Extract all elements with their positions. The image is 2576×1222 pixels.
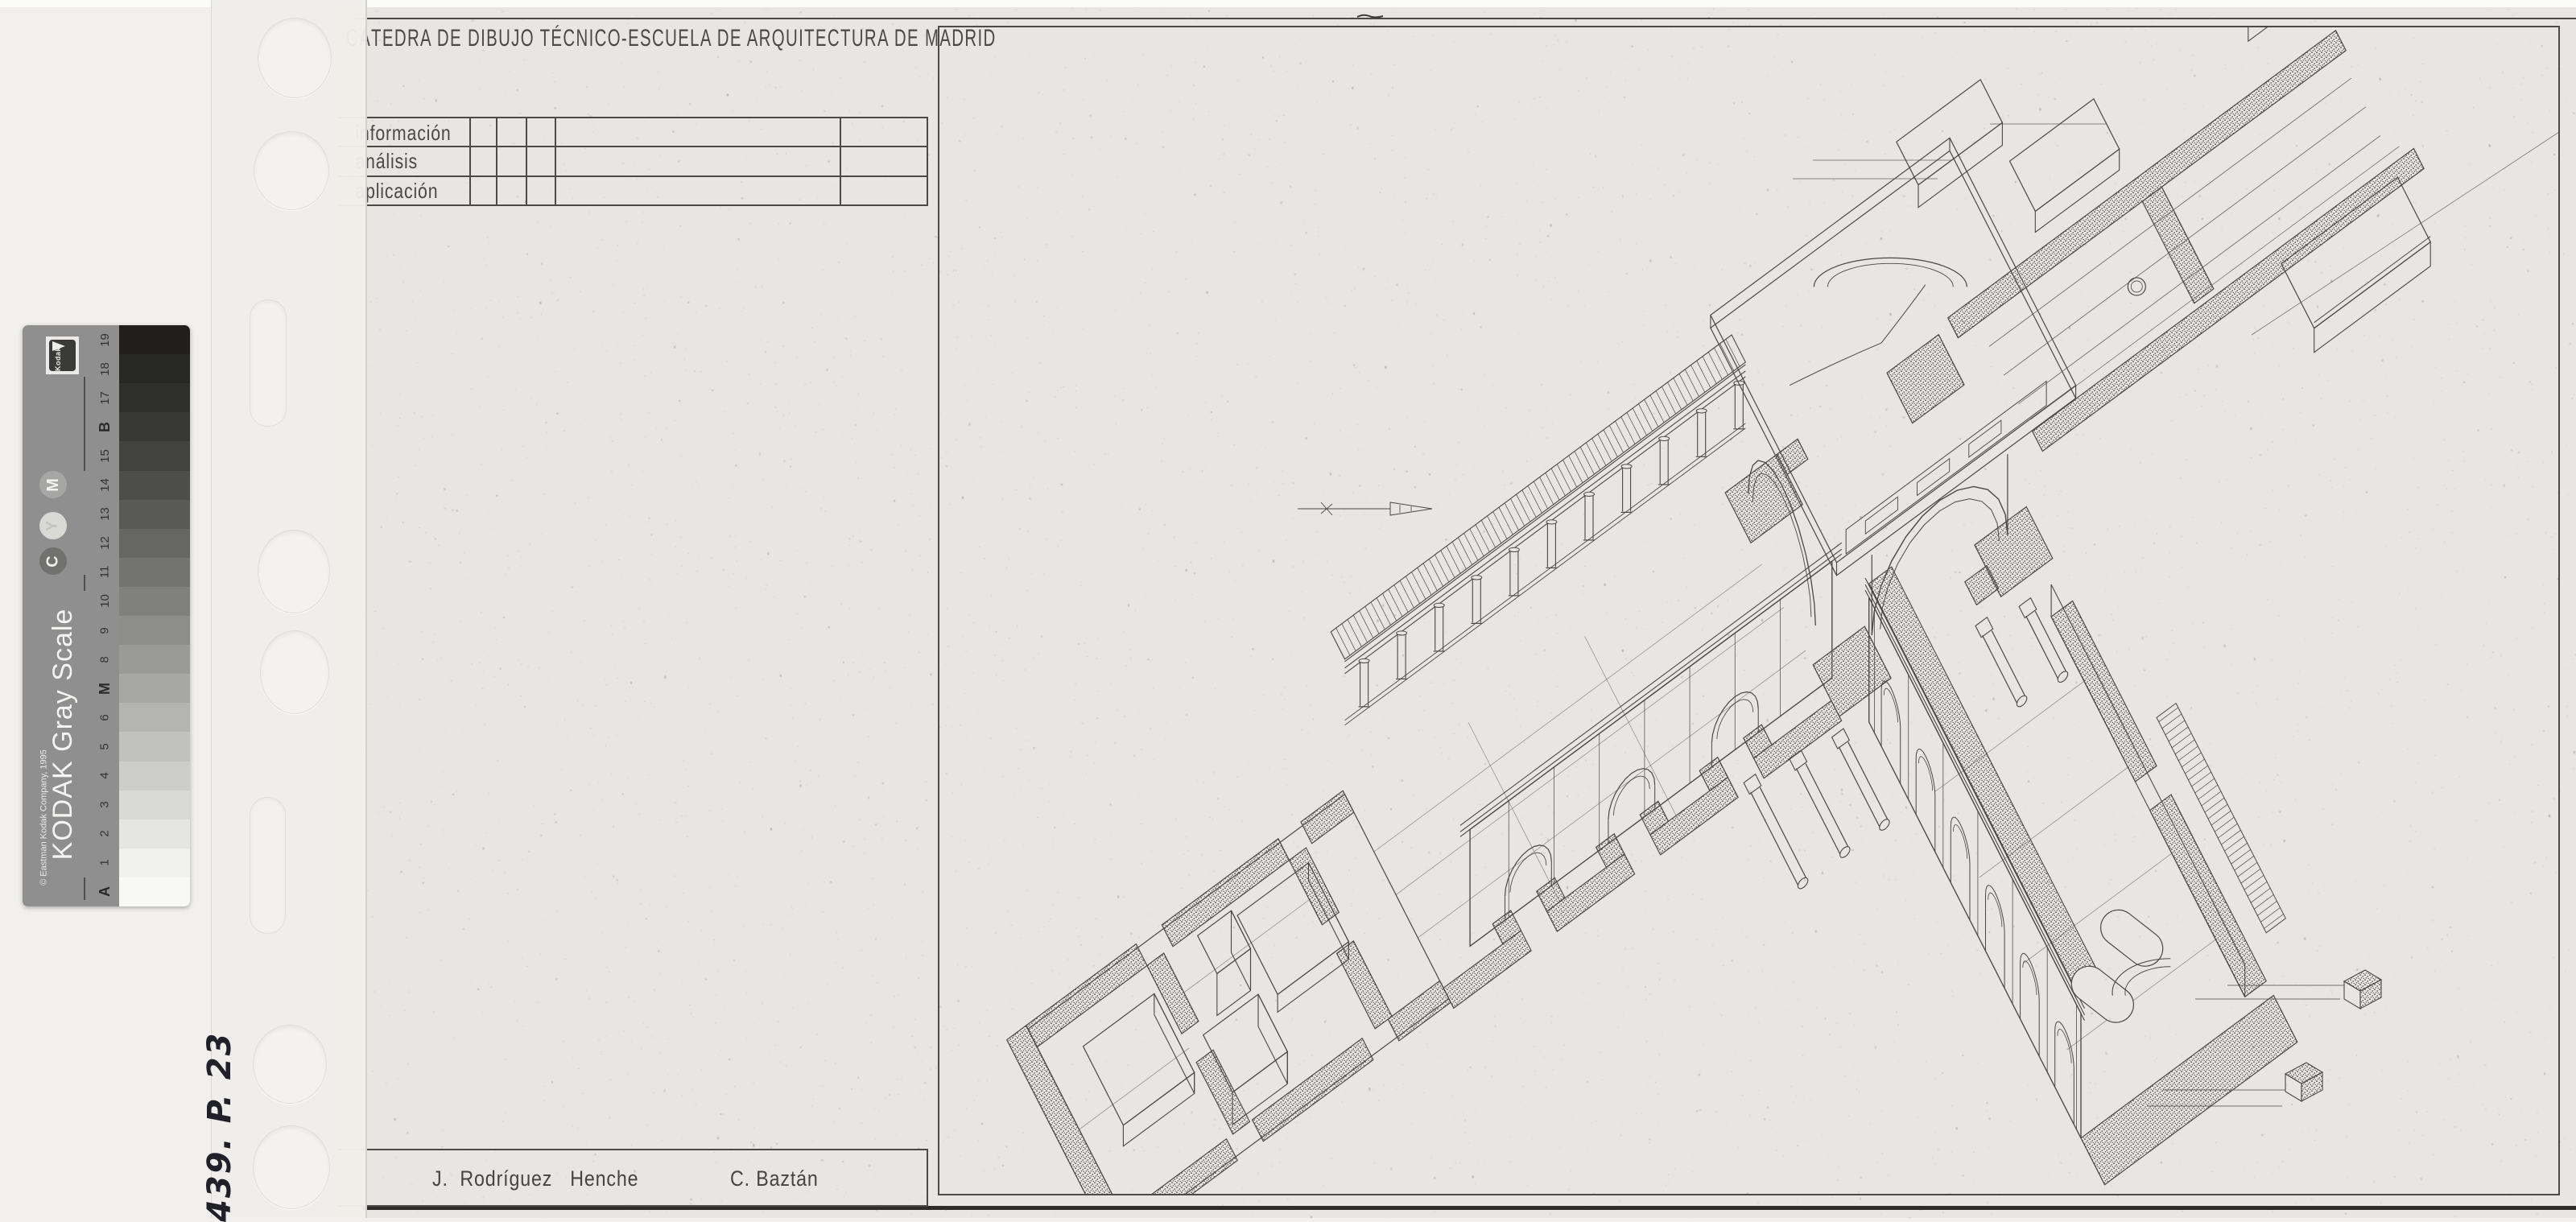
table-row: aplicación	[338, 176, 927, 205]
gray-patch-label: 11	[90, 558, 119, 587]
gray-patch-label: B	[90, 412, 119, 441]
kodak-logo-text: Kodak	[54, 338, 64, 380]
gray-patch	[119, 877, 190, 906]
drawing-frame	[938, 26, 2560, 1195]
scanned-drawing-photograph: CÁTEDRA DE DIBUJO TÉCNICO-ESCUELA DE ARQ…	[0, 0, 2576, 1218]
authors-box: J. Rodríguez Henche C. Baztán	[338, 1149, 928, 1207]
handwritten-tick	[1356, 9, 1384, 15]
gray-patch-label: 1	[90, 848, 119, 877]
gray-patch	[119, 558, 190, 588]
gray-patch	[119, 471, 190, 501]
gray-patch	[119, 703, 190, 733]
strip-rule	[84, 377, 85, 471]
gray-patch-label: 9	[90, 616, 119, 645]
gray-patch	[119, 412, 190, 442]
kodak-copyright: © Eastman Kodak Company, 1995	[39, 741, 52, 894]
gray-patch	[119, 587, 190, 617]
sleeve-tab	[250, 299, 287, 427]
yellow-patch-circle: Y	[39, 512, 67, 539]
scan-top-edge	[0, 0, 2576, 7]
gray-patch-label: 10	[90, 587, 119, 616]
gray-patch	[119, 500, 190, 530]
gray-patch	[119, 529, 190, 559]
gray-patch	[119, 791, 190, 820]
sleeve-tab	[250, 797, 286, 934]
gray-patch-label: M	[90, 674, 119, 703]
table-row: información	[338, 118, 927, 147]
gray-patch-label: 14	[90, 471, 119, 500]
gray-patch	[119, 616, 190, 646]
gray-patch-label: 13	[90, 500, 119, 529]
gray-patch-label: 19	[90, 325, 119, 354]
punch-hole	[258, 530, 330, 613]
gray-patch-label: 6	[90, 703, 119, 732]
strip-rule	[84, 877, 85, 900]
kodak-gray-scale-strip: 191817B15141312111098M654321A KODAK Gray…	[23, 325, 190, 906]
gray-patch	[119, 441, 190, 471]
gray-scale-patches	[119, 325, 190, 906]
author-name: C. Baztán	[730, 1166, 819, 1191]
gray-patch	[119, 674, 190, 704]
gray-patch-label: 3	[90, 791, 119, 819]
sleeve-edge	[365, 0, 367, 1218]
gray-patch-label: 17	[90, 383, 119, 412]
gray-patch-label: 15	[90, 441, 119, 470]
punch-hole	[258, 18, 332, 98]
gray-patch-label: 12	[90, 529, 119, 558]
gray-patch-label: 2	[90, 819, 119, 848]
gray-patch	[119, 645, 190, 675]
gray-patch	[119, 732, 190, 762]
punch-hole	[254, 131, 329, 210]
magenta-patch-circle: M	[39, 471, 67, 498]
drawing-sheet: CÁTEDRA DE DIBUJO TÉCNICO-ESCUELA DE ARQ…	[338, 7, 2576, 1218]
sheet-header-title: CÁTEDRA DE DIBUJO TÉCNICO-ESCUELA DE ARQ…	[346, 25, 1003, 52]
punch-hole	[253, 1125, 330, 1209]
gray-patch	[119, 325, 190, 355]
author-name: J. Rodríguez Henche	[432, 1166, 638, 1191]
axonometric-church-drawing	[939, 27, 2558, 1194]
handwritten-note: 439. P. 23	[201, 956, 242, 1222]
gray-patch	[119, 848, 190, 878]
table-row: análisis	[338, 147, 927, 175]
gray-patch-label: 8	[90, 645, 119, 674]
cyan-patch-circle: C	[39, 547, 67, 575]
kodak-brand-title: KODAK Gray Scale	[47, 589, 83, 879]
gray-patch-label: 4	[90, 762, 119, 791]
strip-rule	[84, 575, 85, 591]
gray-patch-label: 5	[90, 732, 119, 761]
grading-table: información análisis aplicación	[338, 117, 928, 206]
punch-hole	[253, 1025, 327, 1104]
gray-patch	[119, 354, 190, 384]
gray-patch-label: A	[90, 877, 119, 906]
gray-patch	[119, 383, 190, 413]
sheet-border-top	[354, 18, 2576, 19]
punch-hole	[260, 630, 329, 714]
gray-patch	[119, 819, 190, 849]
gray-patch-label: 18	[90, 354, 119, 383]
gray-patch	[119, 762, 190, 791]
kodak-logo: Kodak	[46, 336, 79, 374]
